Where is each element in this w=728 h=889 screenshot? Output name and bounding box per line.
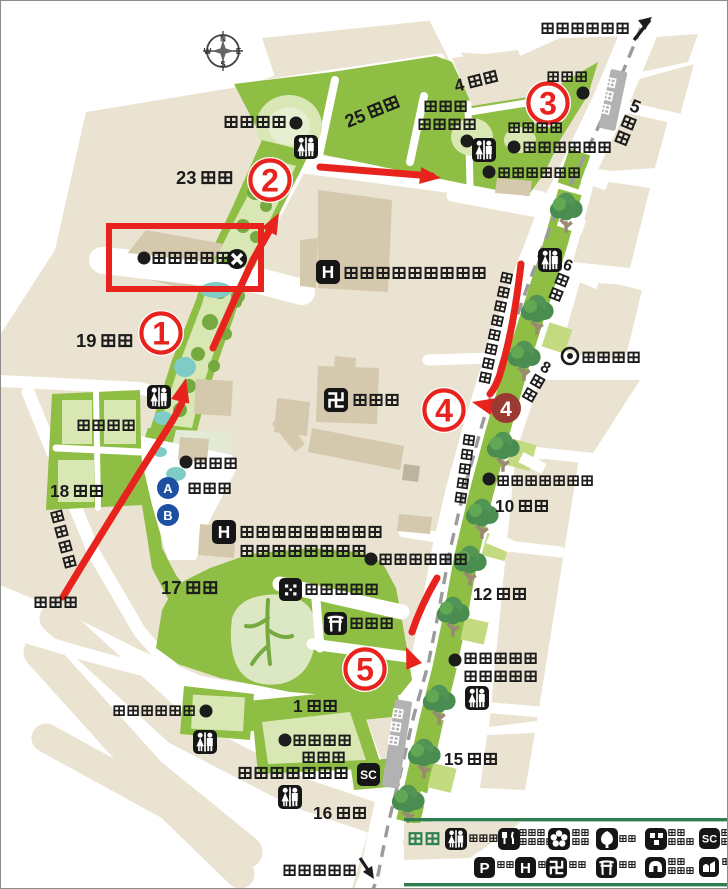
svg-text:S: S — [220, 60, 226, 69]
svg-text:17: 17 — [161, 577, 181, 598]
svg-text:1: 1 — [293, 696, 303, 716]
svg-text:A: A — [163, 481, 173, 496]
svg-text:16: 16 — [313, 803, 332, 823]
svg-text:P: P — [479, 860, 489, 877]
svg-text:N: N — [220, 35, 226, 44]
svg-text:4: 4 — [435, 393, 453, 429]
svg-text:H: H — [322, 262, 334, 282]
svg-text:10: 10 — [495, 496, 514, 516]
svg-text:12: 12 — [473, 584, 492, 604]
svg-text:1: 1 — [152, 316, 170, 352]
svg-text:SC: SC — [702, 833, 717, 845]
svg-text:3: 3 — [539, 86, 557, 122]
svg-text:18: 18 — [50, 481, 70, 501]
svg-text:23: 23 — [176, 167, 196, 188]
svg-text:W: W — [204, 47, 212, 56]
svg-text:4: 4 — [500, 398, 512, 421]
svg-text:SC: SC — [360, 768, 377, 782]
svg-text:H: H — [218, 522, 230, 542]
svg-text:2: 2 — [261, 163, 279, 199]
svg-text:5: 5 — [356, 652, 374, 688]
svg-text:E: E — [236, 47, 242, 56]
svg-text:H: H — [520, 860, 531, 877]
svg-text:B: B — [163, 508, 172, 523]
svg-text:19: 19 — [76, 330, 96, 351]
svg-text:15: 15 — [444, 749, 464, 769]
